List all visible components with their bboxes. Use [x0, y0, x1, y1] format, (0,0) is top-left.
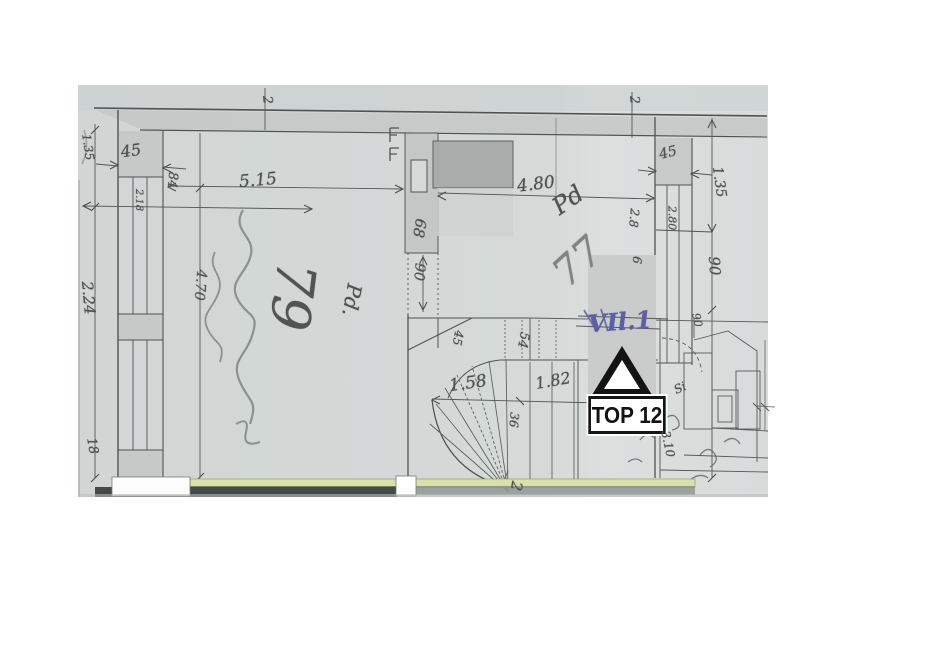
dim-54-stair: 54 [515, 331, 531, 350]
dim-2-8-mid: 2.8 [627, 208, 641, 228]
dim-2-24-left: 2.24 [79, 281, 97, 316]
dim-4-80: 4.80 [516, 174, 556, 195]
tick-2-top-left: 2 [260, 95, 274, 104]
dim-5-15: 5.15 [238, 171, 277, 191]
handwritten-90-bath: 90 [690, 312, 704, 328]
dim-4-70: 4.70 [192, 269, 209, 301]
ink-note-vil1: VIl.1 [587, 308, 653, 336]
dim-2-80-right-window: 2.80 [667, 206, 678, 231]
unit-label-top12: TOP 12 [588, 396, 665, 434]
dim-2-18-window: 2.18 [133, 189, 143, 211]
handwritten-79: 79 [261, 259, 323, 334]
tick-2-top-right: 2 [627, 95, 641, 104]
pier-niche [411, 160, 427, 192]
dim-90-center: 90 [411, 263, 427, 282]
dim-68-pier: 68 [410, 217, 428, 238]
stair-treads [430, 320, 574, 492]
dim-45-top-left: 45 [120, 142, 142, 161]
bottom-wall [78, 476, 768, 497]
dim-1-35-far-left: 1.35 [80, 133, 96, 161]
hatch-mark-f [390, 148, 399, 161]
flue-block [433, 141, 513, 188]
bottom-door-opening [396, 476, 416, 496]
highlighted-wall-line [190, 479, 695, 487]
door-swing-arc [662, 338, 702, 372]
dim-1-35-right: 1.35 [710, 166, 728, 199]
floorplan-drawing [0, 0, 950, 671]
handwritten-pd-left: Pd. [339, 282, 364, 318]
dim-45-stair: 45 [451, 329, 465, 346]
bottom-window-opening [112, 477, 190, 496]
dim-6-mid: 6 [631, 256, 644, 265]
dim-90-right: 90 [706, 256, 722, 276]
left-wall [118, 110, 163, 478]
dim-45-top-right: 45 [658, 144, 679, 162]
scanned-floorplan: TOP 12 455.154.80451.352.2418842.184.706… [0, 0, 950, 671]
center-pier [390, 128, 513, 315]
dim-18-left: 18 [84, 437, 100, 456]
dim-36-stair: 36 [507, 412, 520, 428]
handwritten-2-stair: 2 [508, 480, 524, 492]
unit-label-text: TOP 12 [592, 402, 663, 429]
dim-84: 84 [165, 171, 179, 189]
